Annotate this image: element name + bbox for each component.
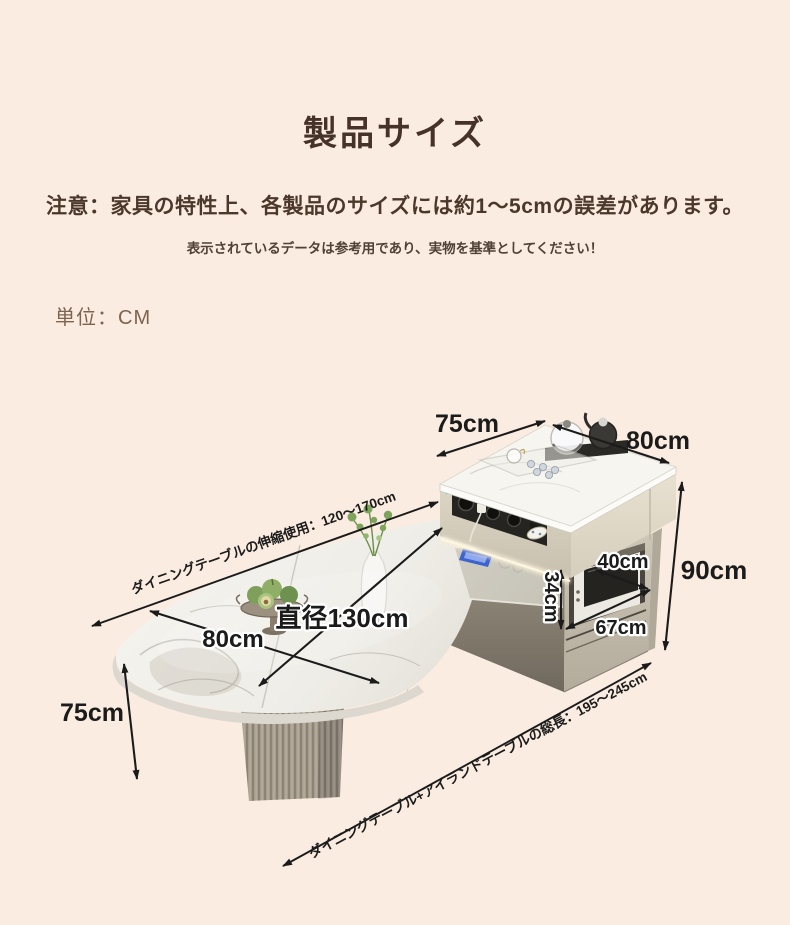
- label-niche-width: 67cm: [595, 617, 646, 639]
- label-niche-depth: 40cm: [597, 551, 648, 573]
- label-table-diameter: 直径130cm: [276, 603, 409, 633]
- label-table-height: 75cm: [60, 699, 124, 727]
- label-island-top-width: 80cm: [626, 427, 690, 455]
- label-island-top-depth: 75cm: [435, 410, 499, 438]
- label-table-depth: 80cm: [202, 626, 263, 653]
- product-size-page: { "header": { "title": "製品サイズ", "notice"…: [0, 0, 790, 925]
- label-island-height: 90cm: [681, 555, 748, 585]
- label-niche-height: 34cm: [540, 571, 562, 622]
- glass-teapot: [507, 449, 521, 463]
- size-diagram: 75cm 80cm 90cm 40cm 34cm 67cm 直径130cm 80…: [0, 0, 790, 925]
